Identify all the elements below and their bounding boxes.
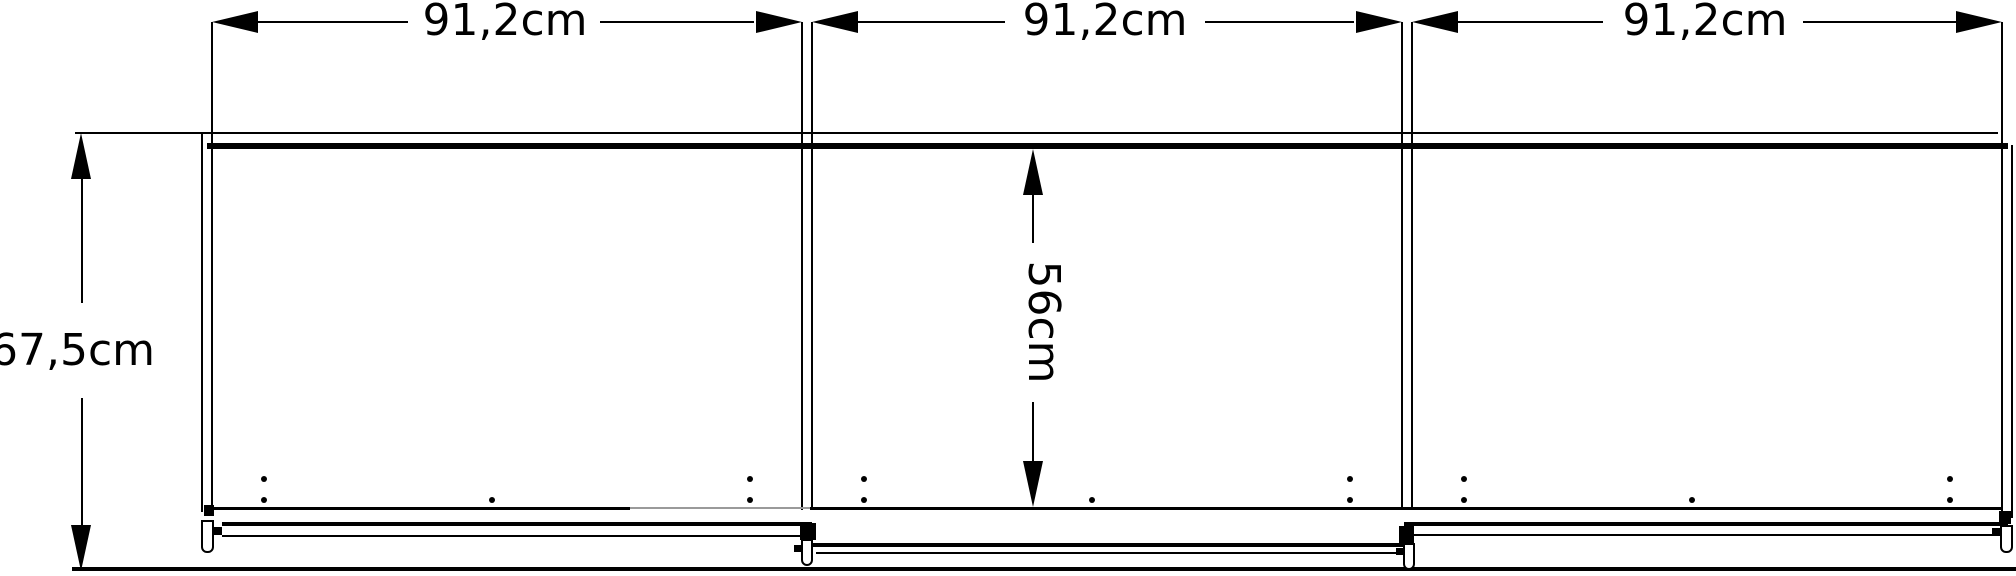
foot-tab <box>1992 528 2001 536</box>
dim-arrowhead-up-icon <box>1023 149 1043 195</box>
foot-right <box>2000 525 2013 553</box>
cabinet-top-thin-line <box>75 132 1998 134</box>
screw-dot <box>747 497 753 503</box>
dim-arrowhead-left-icon <box>212 11 258 33</box>
width-dim-3-label: 91,2cm <box>1605 0 1805 44</box>
screw-dot <box>1347 476 1353 482</box>
door-bottom-edge-muted <box>630 507 810 509</box>
bottom-rail-thin <box>222 535 808 537</box>
screw-dot <box>1947 476 1953 482</box>
dim-arrowhead-up-icon <box>71 133 91 179</box>
dim-arrowhead-down-icon <box>1023 461 1043 507</box>
dim-line <box>1803 21 1956 23</box>
right-extension-line <box>2001 22 2003 518</box>
inner-height-dim-line <box>1032 195 1034 243</box>
dim-arrowhead-right-icon <box>1956 11 2002 33</box>
screw-dot <box>1089 497 1095 503</box>
dim-arrowhead-down-icon <box>71 525 91 571</box>
door-guide-hook <box>1999 511 2011 524</box>
dim-line <box>600 21 754 23</box>
screw-dot <box>261 476 267 482</box>
inner-height-dim-line <box>1032 402 1034 462</box>
screw-dot <box>1461 476 1467 482</box>
door-bottom-edge <box>213 507 630 510</box>
foot-tab <box>1396 548 1404 555</box>
width-dim-2-label: 91,2cm <box>1005 0 1205 44</box>
door-guide-hook <box>1399 526 1414 543</box>
floor-track-line <box>72 567 2016 571</box>
dim-line <box>856 21 1005 23</box>
screw-dot <box>1947 497 1953 503</box>
bottom-rail-thick <box>222 522 812 526</box>
width-dim-1-label: 91,2cm <box>405 0 605 44</box>
dim-arrowhead-left-icon <box>1412 11 1458 33</box>
foot-left <box>201 520 214 553</box>
screw-dot <box>861 497 867 503</box>
partition-1-line <box>811 22 813 510</box>
height-dim-label: 67,5cm <box>0 328 154 374</box>
dim-line <box>256 21 408 23</box>
foot-tab <box>213 527 222 535</box>
foot-tab <box>794 545 802 552</box>
partition-1-line <box>801 22 803 510</box>
wardrobe-technical-diagram: 91,2cm 91,2cm 91,2cm 67,5cm 56cm <box>0 0 2016 576</box>
foot-partition-1 <box>801 539 813 566</box>
screw-dot <box>861 476 867 482</box>
partition-2-line <box>1411 22 1413 510</box>
screw-dot <box>1347 497 1353 503</box>
bottom-rail-thick <box>1404 522 2008 526</box>
bottom-rail-thin <box>1412 534 2002 536</box>
foot-partition-2 <box>1403 543 1415 570</box>
bottom-rail-thick <box>812 543 1408 547</box>
dim-arrowhead-right-icon <box>756 11 802 33</box>
left-panel-edge-line <box>201 133 203 512</box>
height-dim-line <box>81 179 83 303</box>
screw-dot <box>1689 497 1695 503</box>
inner-height-dim-label: 56cm <box>1022 242 1066 402</box>
height-dim-line <box>81 398 83 526</box>
right-panel-edge-line <box>2011 145 2013 518</box>
dim-arrowhead-left-icon <box>812 11 858 33</box>
door-bottom-edge <box>810 507 2002 510</box>
dim-line <box>1205 21 1354 23</box>
screw-dot <box>747 476 753 482</box>
screw-dot <box>261 497 267 503</box>
door-guide-hook <box>800 523 816 540</box>
screw-dot <box>489 497 495 503</box>
left-extension-line <box>211 22 213 510</box>
cabinet-top-thick-rail <box>207 143 2008 149</box>
screw-dot <box>1461 497 1467 503</box>
door-guide-hook <box>204 505 214 516</box>
bottom-rail-thin <box>816 552 1406 554</box>
partition-2-line <box>1401 22 1403 510</box>
dim-line <box>1456 21 1603 23</box>
dim-arrowhead-right-icon <box>1356 11 1402 33</box>
